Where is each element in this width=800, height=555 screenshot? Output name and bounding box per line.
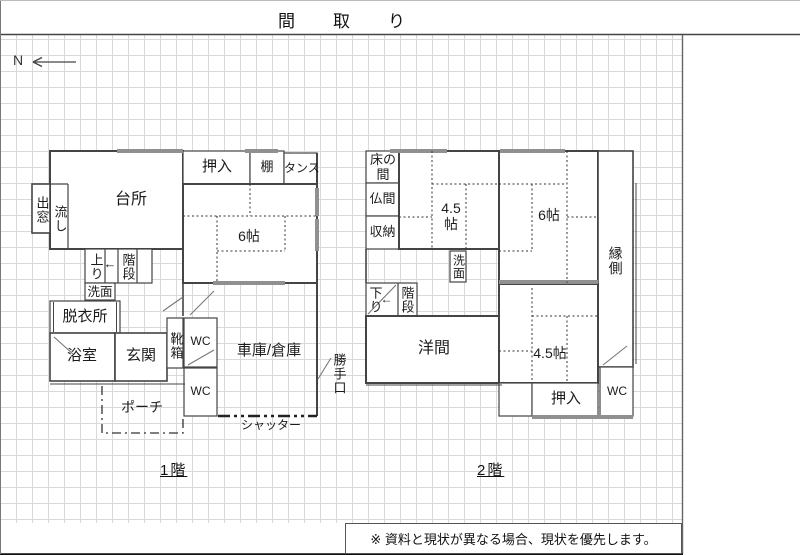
room-label-engawa: 縁側 [607,243,623,279]
room-label-closet-2f: 押入 [547,391,585,408]
room-label-stairs-2f: 階段 [399,285,414,314]
room-label-washbasin-1f: 洗面 [86,285,114,299]
room-label-washbasin-2f: 洗面 [451,253,464,281]
label-back-door: 勝手口 [331,351,346,397]
north-arrow [33,58,76,67]
room-label-step-up: 上り [88,252,103,282]
room-label-bathroom: 浴室 [65,348,99,365]
room-label-garage: 車庫/倉庫 [234,343,304,360]
stairs-direction-arrow-1f: ← [103,257,117,272]
room-label-tatami6-1f: 6帖 [231,229,267,245]
room-label-shelf: 棚 [257,160,277,175]
room-label-stairs-1f: 階段 [120,252,135,282]
room-label-kitchen: 台所 [103,191,159,209]
compass-north-label: N [13,52,23,68]
room-label-sink: 流し [52,197,67,241]
room-label-tatami45-upper: 4.5帖 [436,201,466,232]
room-label-wc-2f: WC [605,385,629,398]
room-label-storage: 収納 [369,225,396,240]
room-label-entrance: 玄関 [124,348,158,365]
room-label-butsuma: 仏間 [369,192,396,207]
floor-plan-page: 間取り [0,0,800,555]
room-label-tokonoma: 床の間 [368,153,398,182]
label-shutter: シャッター [241,419,297,432]
room-label-western-room: 洋間 [415,340,453,358]
label-porch: ポーチ [119,400,165,416]
room-label-shoe-box: 靴箱 [168,330,183,362]
disclaimer-note-text: ※ 資料と現状が異なる場合、現状を優先します。 [370,529,656,548]
room-label-tatami45-lower: 4.5帖 [530,346,570,362]
stairs-direction-arrow-2f: ← [380,293,393,306]
floor1-title: 1階 [160,459,187,480]
room-label-wc-lower-1f: WC [189,385,212,398]
room-label-tatami6-2f: 6帖 [531,208,567,224]
disclaimer-note-box: ※ 資料と現状が異なる場合、現状を優先します。 [345,523,682,554]
room-label-dresser: タンス [284,162,317,175]
floor2-title: 2階 [477,459,504,480]
room-label-dressing-room: 脱衣所 [61,309,109,326]
room-label-closet-1f: 押入 [194,159,240,176]
room-label-bay-window: 出窓 [34,187,49,232]
room-label-wc-upper-1f: WC [189,335,212,348]
